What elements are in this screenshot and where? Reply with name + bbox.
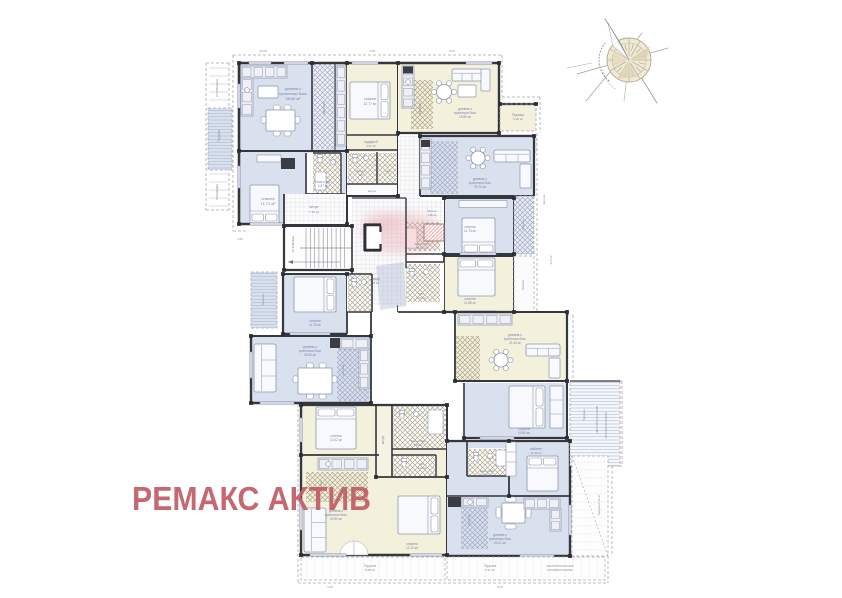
svg-text:WC: WC bbox=[359, 173, 365, 177]
svg-text:10.29: 10.29 bbox=[259, 49, 267, 53]
svg-text:антре: антре bbox=[368, 189, 376, 193]
svg-text:20.21 м²: 20.21 м² bbox=[494, 541, 506, 545]
svg-text:5.04: 5.04 bbox=[497, 585, 503, 589]
svg-text:8.05 м²: 8.05 м² bbox=[365, 568, 375, 572]
svg-text:ПРОЗИРЕН ПАРАПЕТ: ПРОЗИРЕН ПАРАПЕТ bbox=[604, 411, 608, 438]
svg-text:7.30 м²: 7.30 м² bbox=[309, 210, 319, 214]
svg-text:5.06 м²: 5.06 м² bbox=[413, 443, 422, 447]
svg-text:5.20 м²: 5.20 м² bbox=[513, 117, 523, 121]
svg-text:3.39: 3.39 bbox=[369, 49, 375, 53]
svg-text:3.77 м²: 3.77 м² bbox=[416, 296, 425, 300]
svg-text:10.90 м²: 10.90 м² bbox=[518, 431, 530, 435]
svg-text:кух.бокс: кух.бокс bbox=[341, 364, 345, 376]
svg-text:антре: антре bbox=[381, 436, 385, 445]
svg-text:СТЪЛБИЩНА: СТЪЛБИЩНА bbox=[215, 79, 219, 97]
svg-text:26.06 м²: 26.06 м² bbox=[304, 353, 316, 357]
svg-text:11.88 м²: 11.88 м² bbox=[464, 301, 476, 305]
svg-text:Терраса 9.10 м²: Терраса 9.10 м² bbox=[597, 495, 601, 516]
svg-text:кух.бокс: кух.бокс bbox=[467, 514, 471, 526]
svg-text:4.39 м²: 4.39 м² bbox=[482, 473, 491, 477]
svg-text:кух.бокс: кух.бокс bbox=[418, 102, 422, 115]
svg-text:2.71 м²: 2.71 м² bbox=[418, 466, 427, 470]
svg-text:Терраса: Терраса bbox=[217, 130, 221, 142]
svg-text:1.50: 1.50 bbox=[237, 237, 243, 241]
svg-text:Терраса: Терраса bbox=[261, 294, 265, 306]
svg-text:пер.: пер. bbox=[385, 169, 391, 173]
svg-text:WC: WC bbox=[420, 462, 425, 466]
svg-text:4.07 м²: 4.07 м² bbox=[549, 255, 553, 264]
svg-text:11.73 м²: 11.73 м² bbox=[464, 229, 476, 233]
svg-text:21.40 м²: 21.40 м² bbox=[509, 341, 521, 345]
svg-text:12.77 м²: 12.77 м² bbox=[364, 102, 378, 106]
svg-text:кух.бокс: кух.бокс bbox=[322, 101, 326, 114]
svg-text:6.27 м²: 6.27 м² bbox=[485, 568, 495, 572]
svg-text:СВЕТЛОПРОПУСКЛИВ: СВЕТЛОПРОПУСКЛИВ bbox=[546, 565, 574, 568]
svg-text:11.71 м²: 11.71 м² bbox=[261, 201, 277, 206]
svg-text:ПРОЗИРЕН ПАРАПЕТ: ПРОЗИРЕН ПАРАПЕТ bbox=[547, 569, 574, 572]
svg-text:балкон: балкон bbox=[521, 220, 525, 230]
svg-text:Терраса: Терраса bbox=[582, 409, 586, 421]
svg-text:12.02 м²: 12.02 м² bbox=[330, 438, 342, 442]
svg-text:11.30 м²: 11.30 м² bbox=[530, 451, 541, 455]
svg-text:ПЛОЩАДКА: ПЛОЩАДКА bbox=[215, 184, 219, 200]
svg-text:22.90 м²: 22.90 м² bbox=[330, 517, 342, 521]
svg-text:балкон: балкон bbox=[427, 209, 437, 213]
svg-text:пергола: пергола bbox=[542, 194, 546, 205]
svg-text:19.80 м²: 19.80 м² bbox=[459, 115, 471, 119]
svg-text:28.60 м²: 28.60 м² bbox=[285, 96, 301, 101]
svg-text:20.70 м²: 20.70 м² bbox=[474, 185, 486, 189]
svg-text:3.80 м²: 3.80 м² bbox=[428, 213, 437, 217]
svg-text:12.10 м²: 12.10 м² bbox=[406, 546, 418, 550]
svg-text:4.25: 4.25 bbox=[327, 585, 333, 589]
svg-text:балкон: балкон bbox=[521, 280, 525, 290]
svg-text:СТЪЛБИЩЕ: СТЪЛБИЩЕ bbox=[291, 236, 295, 252]
svg-text:антре: антре bbox=[309, 205, 318, 209]
svg-text:5.04: 5.04 bbox=[449, 49, 455, 53]
svg-text:3.97 м²: 3.97 м² bbox=[366, 144, 376, 148]
svg-text:5.87 м²: 5.87 м² bbox=[318, 184, 328, 188]
svg-text:11.76 м²: 11.76 м² bbox=[309, 323, 321, 327]
svg-text:РЕМАКС АКТИВ: РЕМАКС АКТИВ bbox=[132, 480, 371, 517]
svg-text:СВЕТЛОПРОПУСКЛИВ: СВЕТЛОПРОПУСКЛИВ bbox=[595, 406, 599, 435]
svg-text:спалня: спалня bbox=[364, 97, 376, 101]
